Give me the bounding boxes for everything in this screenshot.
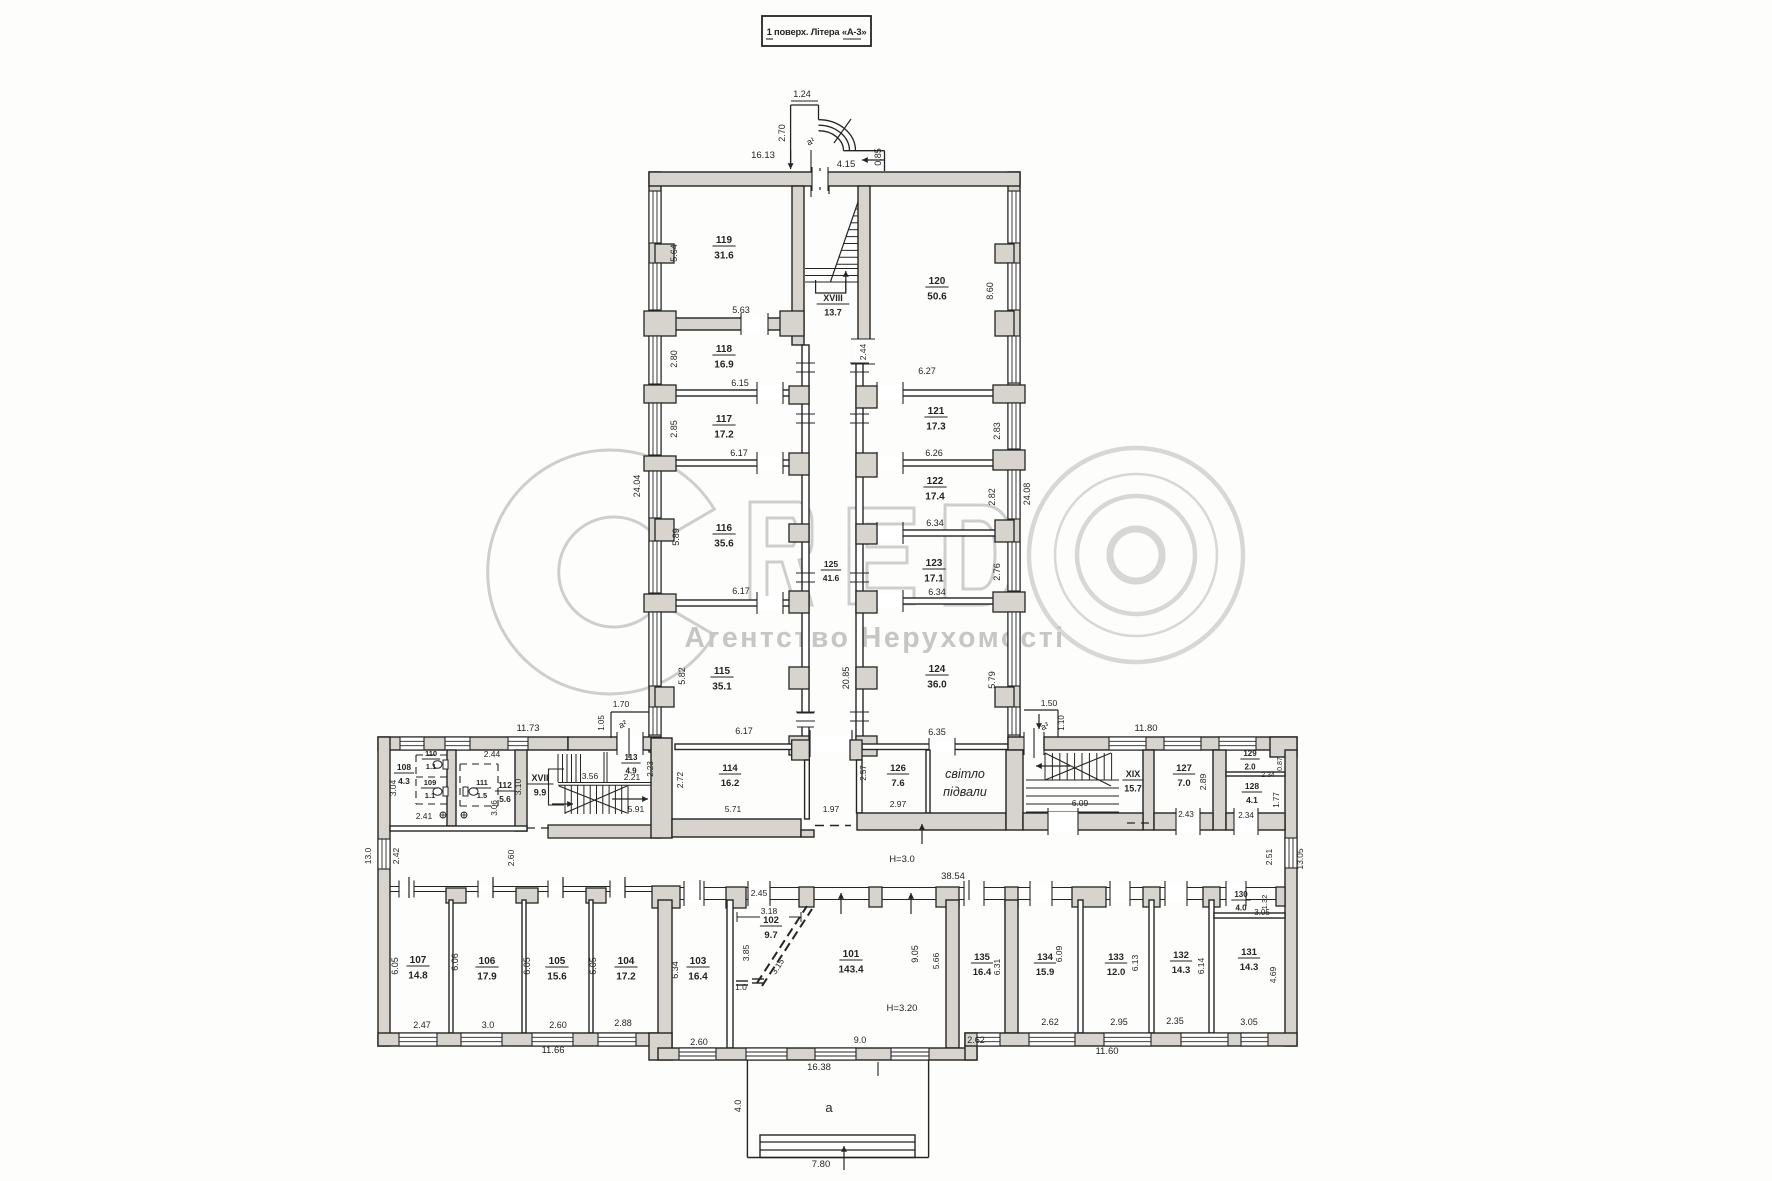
svg-text:2.88: 2.88 [614, 1018, 632, 1028]
svg-text:1.50: 1.50 [1041, 698, 1058, 708]
svg-text:2.60: 2.60 [549, 1020, 567, 1030]
svg-text:2.97: 2.97 [890, 799, 907, 809]
svg-text:3.06: 3.06 [490, 800, 499, 816]
svg-text:2.83: 2.83 [992, 422, 1002, 440]
svg-text:6.34: 6.34 [670, 961, 680, 979]
svg-text:H=3.20: H=3.20 [887, 1003, 918, 1014]
svg-text:17.2: 17.2 [714, 430, 734, 441]
svg-text:24.04: 24.04 [632, 475, 642, 498]
svg-text:120: 120 [929, 276, 946, 287]
svg-text:2.23: 2.23 [646, 761, 655, 777]
svg-text:123: 123 [926, 558, 943, 569]
svg-text:11.60: 11.60 [1095, 1046, 1118, 1057]
svg-text:130: 130 [1234, 890, 1248, 899]
svg-text:17.3: 17.3 [926, 422, 946, 433]
svg-text:2.35: 2.35 [1166, 1016, 1184, 1026]
svg-text:126: 126 [890, 763, 906, 774]
svg-text:2.60: 2.60 [690, 1037, 708, 1047]
svg-text:7.0: 7.0 [1177, 778, 1190, 789]
svg-text:38.54: 38.54 [941, 871, 965, 882]
svg-text:4.1: 4.1 [1246, 795, 1258, 805]
svg-text:3.05: 3.05 [1240, 1017, 1258, 1027]
svg-text:109: 109 [424, 778, 437, 787]
svg-text:6.09: 6.09 [1054, 945, 1064, 962]
svg-text:24.08: 24.08 [1022, 483, 1032, 506]
svg-text:50.6: 50.6 [927, 292, 947, 303]
svg-text:16.4: 16.4 [973, 967, 992, 978]
svg-text:41.6: 41.6 [823, 573, 840, 583]
svg-text:131: 131 [1241, 947, 1258, 958]
svg-text:117: 117 [716, 414, 733, 425]
svg-text:6.05: 6.05 [522, 957, 532, 975]
svg-text:101: 101 [843, 949, 860, 960]
svg-text:2.82: 2.82 [987, 488, 997, 506]
svg-text:12.0: 12.0 [1107, 967, 1126, 978]
svg-text:2.34: 2.34 [1261, 772, 1275, 779]
svg-text:31.6: 31.6 [714, 251, 734, 262]
svg-text:16.4: 16.4 [688, 972, 708, 983]
svg-text:122: 122 [927, 476, 944, 487]
svg-text:14.3: 14.3 [1172, 965, 1191, 976]
svg-text:3.04: 3.04 [388, 779, 398, 796]
svg-text:2.44: 2.44 [484, 749, 501, 759]
svg-text:15.9: 15.9 [1036, 967, 1055, 978]
svg-text:6.34: 6.34 [926, 518, 944, 528]
svg-text:16.2: 16.2 [721, 778, 740, 789]
svg-text:113: 113 [625, 753, 638, 762]
svg-text:118: 118 [716, 344, 733, 355]
svg-text:4.0: 4.0 [1235, 904, 1247, 913]
svg-text:2.51: 2.51 [1264, 848, 1274, 865]
svg-text:1.0: 1.0 [735, 982, 747, 992]
svg-text:124: 124 [929, 664, 946, 675]
svg-text:XIX: XIX [1126, 769, 1141, 779]
svg-text:133: 133 [1108, 952, 1124, 963]
svg-text:102: 102 [763, 915, 779, 926]
svg-text:16.9: 16.9 [714, 360, 734, 371]
svg-text:16.38: 16.38 [807, 1062, 831, 1073]
svg-text:6.17: 6.17 [735, 726, 753, 736]
svg-text:134: 134 [1037, 952, 1054, 963]
svg-text:5.6: 5.6 [499, 794, 511, 804]
svg-text:1.1: 1.1 [426, 762, 436, 771]
svg-text:2.44: 2.44 [858, 343, 868, 360]
svg-text:2.41: 2.41 [416, 811, 433, 821]
svg-text:121: 121 [928, 406, 945, 417]
svg-text:2.70: 2.70 [777, 124, 787, 142]
svg-text:5.82: 5.82 [677, 667, 687, 685]
svg-text:5.71: 5.71 [725, 804, 742, 814]
svg-text:H=3.0: H=3.0 [889, 854, 915, 865]
svg-text:2.76: 2.76 [992, 563, 1002, 581]
svg-text:11.73: 11.73 [516, 723, 539, 734]
svg-text:6.34: 6.34 [928, 587, 946, 597]
svg-text:13.0: 13.0 [363, 847, 373, 864]
svg-text:125: 125 [824, 559, 838, 569]
svg-text:2.89: 2.89 [1198, 773, 1208, 790]
svg-text:6.35: 6.35 [928, 727, 946, 737]
svg-text:8.60: 8.60 [985, 282, 995, 300]
svg-text:1.24: 1.24 [793, 89, 811, 99]
svg-text:1.05: 1.05 [597, 715, 606, 731]
svg-text:1.77: 1.77 [1272, 792, 1281, 808]
svg-text:5.89: 5.89 [671, 528, 681, 546]
svg-text:2.0: 2.0 [1244, 763, 1256, 772]
svg-text:112: 112 [498, 780, 512, 790]
svg-text:106: 106 [479, 956, 496, 967]
svg-text:2.80: 2.80 [669, 350, 679, 368]
svg-text:36.0: 36.0 [927, 680, 947, 691]
svg-text:7.6: 7.6 [891, 778, 904, 789]
svg-text:2.21: 2.21 [624, 772, 641, 782]
svg-text:4.0: 4.0 [733, 1100, 743, 1113]
svg-text:1.97: 1.97 [823, 804, 840, 814]
svg-text:108: 108 [397, 762, 411, 772]
svg-text:XVII: XVII [531, 773, 548, 783]
svg-text:114: 114 [722, 763, 738, 774]
svg-text:15.7: 15.7 [1124, 784, 1142, 794]
svg-text:5.79: 5.79 [987, 671, 997, 689]
svg-text:4.69: 4.69 [1268, 966, 1278, 983]
svg-text:2.72: 2.72 [675, 771, 685, 788]
svg-text:132: 132 [1173, 950, 1189, 961]
svg-text:2.34: 2.34 [1238, 811, 1254, 820]
svg-text:15.6: 15.6 [547, 972, 567, 983]
svg-text:116: 116 [716, 523, 733, 534]
svg-text:5.63: 5.63 [732, 305, 750, 315]
svg-text:2.62: 2.62 [967, 1035, 985, 1045]
svg-text:13.7: 13.7 [824, 308, 842, 318]
svg-text:6.15: 6.15 [731, 378, 749, 388]
svg-text:17.9: 17.9 [477, 972, 497, 983]
svg-text:11.66: 11.66 [541, 1045, 564, 1056]
svg-text:119: 119 [716, 235, 733, 246]
svg-text:9.05: 9.05 [910, 945, 920, 963]
svg-text:світло: світло [945, 767, 985, 781]
svg-text:2.95: 2.95 [1110, 1017, 1128, 1027]
svg-text:6.26: 6.26 [925, 448, 943, 458]
svg-text:3.05: 3.05 [1254, 908, 1270, 917]
svg-text:104: 104 [618, 956, 635, 967]
svg-text:2.42: 2.42 [391, 847, 401, 864]
svg-text:5.91: 5.91 [628, 804, 645, 814]
svg-text:0.87: 0.87 [1277, 757, 1284, 771]
svg-text:6.13: 6.13 [1130, 954, 1140, 971]
svg-text:17.1: 17.1 [924, 574, 944, 585]
svg-text:a: a [825, 1100, 833, 1115]
svg-text:129: 129 [1243, 749, 1257, 758]
svg-text:3.85: 3.85 [741, 944, 751, 961]
svg-text:17.2: 17.2 [616, 972, 636, 983]
svg-text:6.14: 6.14 [1196, 957, 1206, 974]
svg-text:17.4: 17.4 [925, 492, 945, 503]
svg-text:110: 110 [425, 749, 437, 758]
svg-text:105: 105 [549, 956, 566, 967]
svg-text:111: 111 [476, 778, 488, 787]
svg-text:2.62: 2.62 [1041, 1017, 1059, 1027]
svg-text:3.10: 3.10 [513, 778, 523, 795]
svg-text:1.5: 1.5 [477, 791, 487, 800]
svg-text:2.60: 2.60 [506, 849, 516, 866]
svg-text:20.85: 20.85 [841, 667, 851, 690]
svg-text:11.80: 11.80 [1134, 723, 1157, 734]
svg-text:1 поверх. Літера «А-3»: 1 поверх. Літера «А-3» [767, 26, 867, 37]
svg-text:9.0: 9.0 [854, 1035, 867, 1045]
svg-text:7.80: 7.80 [812, 1159, 831, 1170]
svg-text:35.6: 35.6 [714, 539, 734, 550]
svg-text:6.05: 6.05 [390, 957, 400, 975]
svg-text:підвали: підвали [943, 785, 987, 799]
svg-text:6.09: 6.09 [1072, 798, 1089, 808]
svg-text:6.05: 6.05 [588, 957, 598, 975]
svg-text:3.0: 3.0 [482, 1020, 495, 1030]
svg-text:35.1: 35.1 [712, 682, 732, 693]
svg-text:6.17: 6.17 [732, 586, 750, 596]
svg-text:9.7: 9.7 [764, 930, 777, 941]
svg-text:6.06: 6.06 [450, 953, 460, 971]
svg-text:127: 127 [1176, 763, 1192, 774]
svg-text:2.43: 2.43 [1178, 810, 1194, 819]
svg-text:115: 115 [714, 666, 731, 677]
svg-text:143.4: 143.4 [838, 965, 863, 976]
svg-text:9.9: 9.9 [534, 788, 547, 798]
svg-text:3.18: 3.18 [761, 906, 778, 916]
svg-text:135: 135 [974, 952, 991, 963]
svg-text:1.70: 1.70 [613, 699, 630, 709]
svg-text:103: 103 [690, 956, 707, 967]
svg-text:3.56: 3.56 [582, 771, 599, 781]
svg-text:14.8: 14.8 [408, 971, 428, 982]
svg-text:6.17: 6.17 [730, 448, 748, 458]
svg-text:2.47: 2.47 [413, 1020, 431, 1030]
svg-text:1.10: 1.10 [1057, 715, 1066, 731]
svg-text:0.85: 0.85 [873, 148, 883, 166]
svg-text:14.3: 14.3 [1240, 962, 1259, 973]
svg-text:1.1: 1.1 [425, 791, 435, 800]
svg-text:16.13: 16.13 [751, 150, 775, 161]
svg-text:5.64: 5.64 [669, 244, 679, 262]
svg-text:4.3: 4.3 [398, 776, 410, 786]
svg-text:2.45: 2.45 [751, 888, 768, 898]
svg-text:2.57: 2.57 [859, 765, 868, 781]
svg-text:2.85: 2.85 [669, 420, 679, 438]
svg-text:128: 128 [1245, 781, 1259, 791]
svg-text:XVIII: XVIII [823, 293, 843, 303]
svg-text:6.27: 6.27 [918, 366, 936, 376]
svg-text:6.31: 6.31 [992, 958, 1002, 975]
svg-text:107: 107 [410, 955, 427, 966]
svg-text:5.66: 5.66 [931, 952, 941, 969]
svg-text:4.15: 4.15 [837, 159, 856, 170]
svg-text:13.05: 13.05 [1295, 848, 1305, 870]
